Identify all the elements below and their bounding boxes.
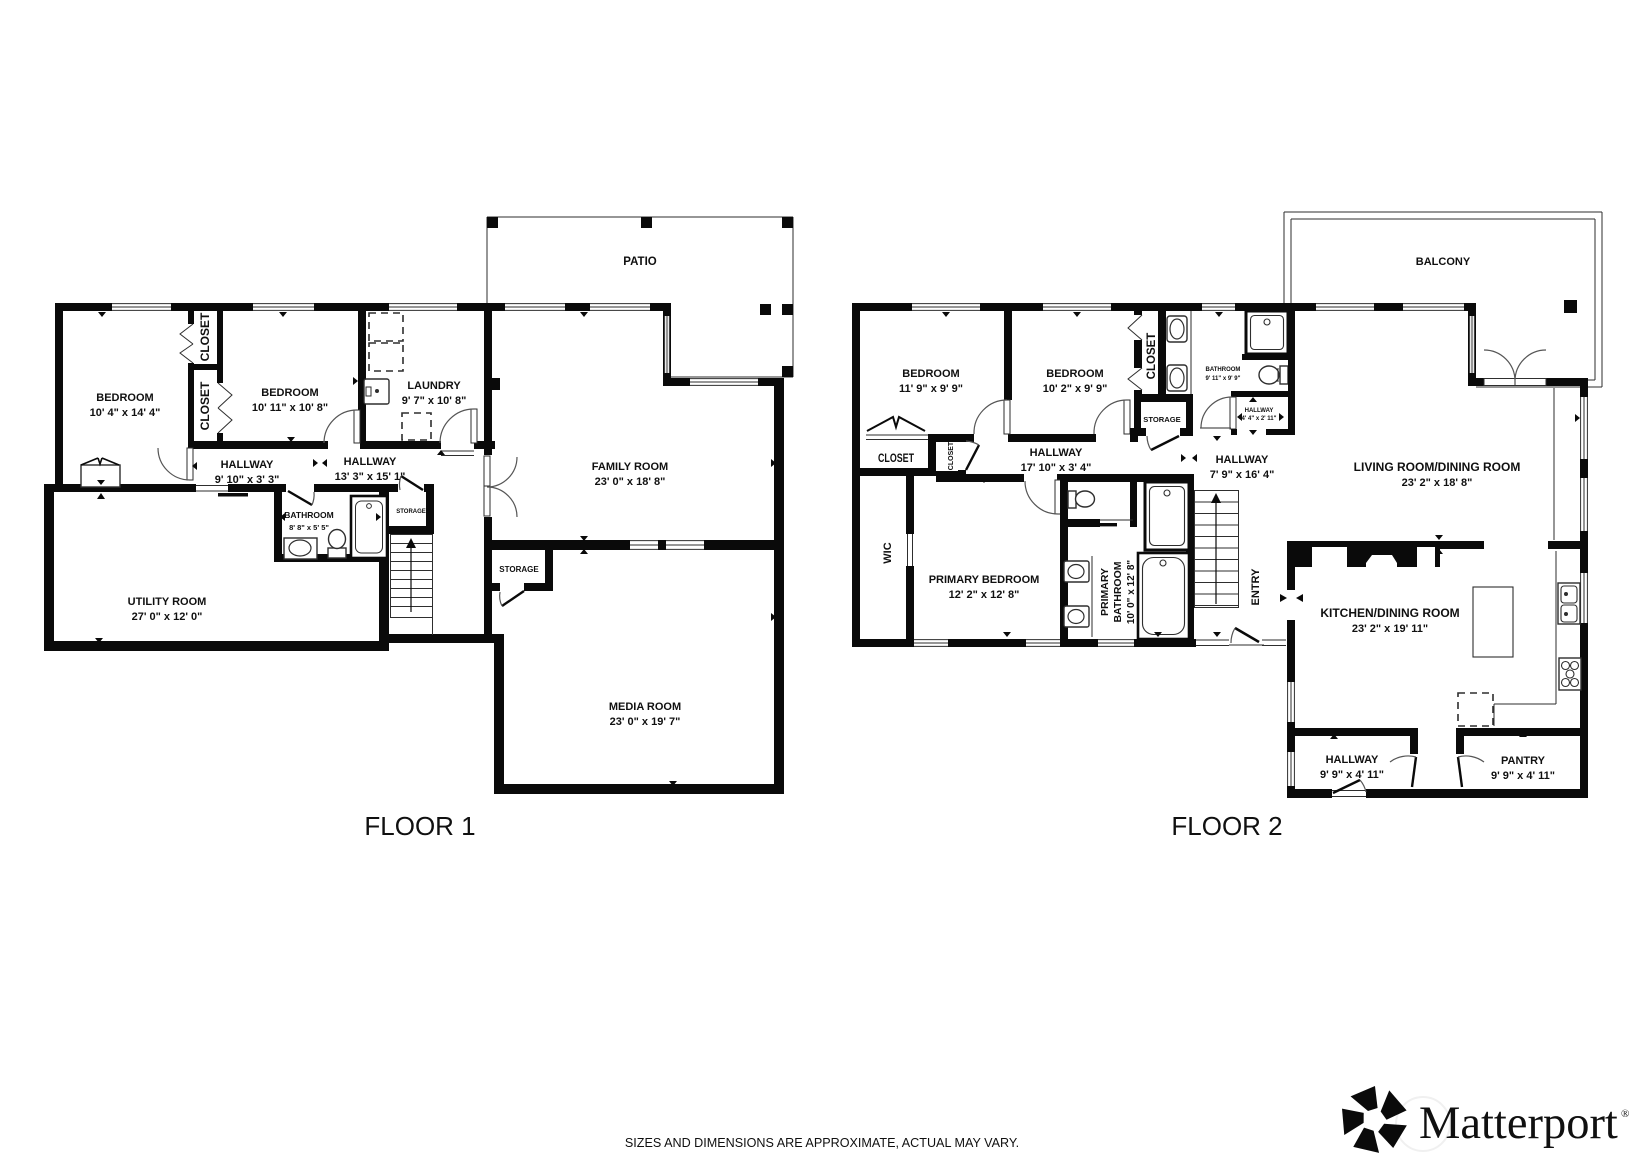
svg-text:10' 2" x 9' 9": 10' 2" x 9' 9" bbox=[1043, 383, 1108, 395]
svg-text:BEDROOM: BEDROOM bbox=[902, 368, 959, 380]
svg-text:13' 3" x 15' 1": 13' 3" x 15' 1" bbox=[335, 471, 406, 483]
svg-text:HALLWAY: HALLWAY bbox=[1216, 454, 1269, 466]
svg-text:STORAGE: STORAGE bbox=[396, 509, 426, 515]
svg-text:BATHROOM: BATHROOM bbox=[1206, 367, 1241, 373]
svg-text:7' 9" x 16' 4": 7' 9" x 16' 4" bbox=[1210, 469, 1275, 481]
svg-text:4' 4" x 2' 11": 4' 4" x 2' 11" bbox=[1242, 416, 1277, 422]
svg-text:Matterport: Matterport bbox=[1419, 1098, 1618, 1149]
svg-text:SIZES AND DIMENSIONS ARE APPRO: SIZES AND DIMENSIONS ARE APPROXIMATE, AC… bbox=[625, 1136, 1019, 1150]
svg-text:BEDROOM: BEDROOM bbox=[261, 387, 318, 399]
svg-text:STORAGE: STORAGE bbox=[499, 565, 539, 574]
svg-text:9' 9" x 4' 11": 9' 9" x 4' 11" bbox=[1491, 770, 1555, 782]
svg-text:HALLWAY: HALLWAY bbox=[344, 456, 397, 468]
svg-text:FAMILY ROOM: FAMILY ROOM bbox=[592, 461, 668, 473]
svg-text:UTILITY ROOM: UTILITY ROOM bbox=[128, 596, 207, 608]
svg-text:HALLWAY: HALLWAY bbox=[1030, 447, 1083, 459]
svg-text:HALLWAY: HALLWAY bbox=[1326, 754, 1379, 766]
svg-text:WIC: WIC bbox=[882, 542, 894, 563]
svg-text:17' 10" x 3' 4": 17' 10" x 3' 4" bbox=[1021, 462, 1092, 474]
svg-text:PANTRY: PANTRY bbox=[1501, 755, 1546, 767]
svg-text:9' 9" x 4' 11": 9' 9" x 4' 11" bbox=[1320, 769, 1384, 781]
svg-text:CLOSET: CLOSET bbox=[198, 312, 212, 361]
svg-text:HALLWAY: HALLWAY bbox=[1245, 408, 1274, 414]
svg-text:10' 0" x 12' 8": 10' 0" x 12' 8" bbox=[1126, 560, 1137, 625]
svg-text:9' 11" x 9' 9": 9' 11" x 9' 9" bbox=[1206, 376, 1241, 382]
svg-text:CLOSET: CLOSET bbox=[1146, 333, 1158, 380]
svg-text:8' 8" x 5' 5": 8' 8" x 5' 5" bbox=[289, 523, 329, 532]
svg-text:®: ® bbox=[1621, 1108, 1629, 1120]
svg-text:LAUNDRY: LAUNDRY bbox=[407, 380, 461, 392]
svg-text:PATIO: PATIO bbox=[623, 256, 656, 268]
svg-text:BATHROOM: BATHROOM bbox=[1112, 561, 1124, 622]
svg-text:9' 10" x 3' 3": 9' 10" x 3' 3" bbox=[215, 474, 280, 486]
svg-text:ENTRY: ENTRY bbox=[1250, 568, 1262, 606]
svg-text:CLOSET: CLOSET bbox=[878, 451, 914, 465]
svg-text:23' 0" x 19' 7": 23' 0" x 19' 7" bbox=[610, 716, 681, 728]
svg-text:MEDIA ROOM: MEDIA ROOM bbox=[609, 701, 681, 713]
svg-text:23' 2" x 19' 11": 23' 2" x 19' 11" bbox=[1352, 623, 1428, 635]
svg-text:STORAGE: STORAGE bbox=[1143, 415, 1180, 424]
svg-text:LIVING ROOM/DINING ROOM: LIVING ROOM/DINING ROOM bbox=[1354, 460, 1521, 474]
svg-text:HALLWAY: HALLWAY bbox=[221, 459, 274, 471]
svg-text:FLOOR 2: FLOOR 2 bbox=[1171, 811, 1282, 841]
svg-text:BEDROOM: BEDROOM bbox=[1046, 368, 1103, 380]
svg-text:PRIMARY BEDROOM: PRIMARY BEDROOM bbox=[929, 574, 1040, 586]
svg-text:9' 7" x 10' 8": 9' 7" x 10' 8" bbox=[402, 395, 467, 407]
svg-text:BEDROOM: BEDROOM bbox=[96, 392, 153, 404]
svg-text:FLOOR 1: FLOOR 1 bbox=[364, 811, 475, 841]
svg-text:BATHROOM: BATHROOM bbox=[284, 510, 333, 520]
svg-text:BALCONY: BALCONY bbox=[1416, 256, 1471, 268]
svg-text:11' 9" x 9' 9": 11' 9" x 9' 9" bbox=[899, 383, 963, 395]
svg-text:23' 0" x 18' 8": 23' 0" x 18' 8" bbox=[595, 476, 666, 488]
svg-text:CLOSET: CLOSET bbox=[198, 381, 212, 430]
svg-text:10' 11" x 10' 8": 10' 11" x 10' 8" bbox=[252, 402, 328, 414]
svg-text:10' 4" x 14' 4": 10' 4" x 14' 4" bbox=[90, 407, 161, 419]
svg-text:CLOSET: CLOSET bbox=[948, 441, 955, 470]
svg-text:23' 2" x 18' 8": 23' 2" x 18' 8" bbox=[1402, 477, 1473, 489]
svg-text:12' 2" x 12' 8": 12' 2" x 12' 8" bbox=[949, 589, 1020, 601]
svg-text:PRIMARY: PRIMARY bbox=[1099, 568, 1111, 616]
svg-text:27' 0" x 12' 0": 27' 0" x 12' 0" bbox=[132, 611, 203, 623]
svg-text:KITCHEN/DINING ROOM: KITCHEN/DINING ROOM bbox=[1320, 606, 1459, 620]
